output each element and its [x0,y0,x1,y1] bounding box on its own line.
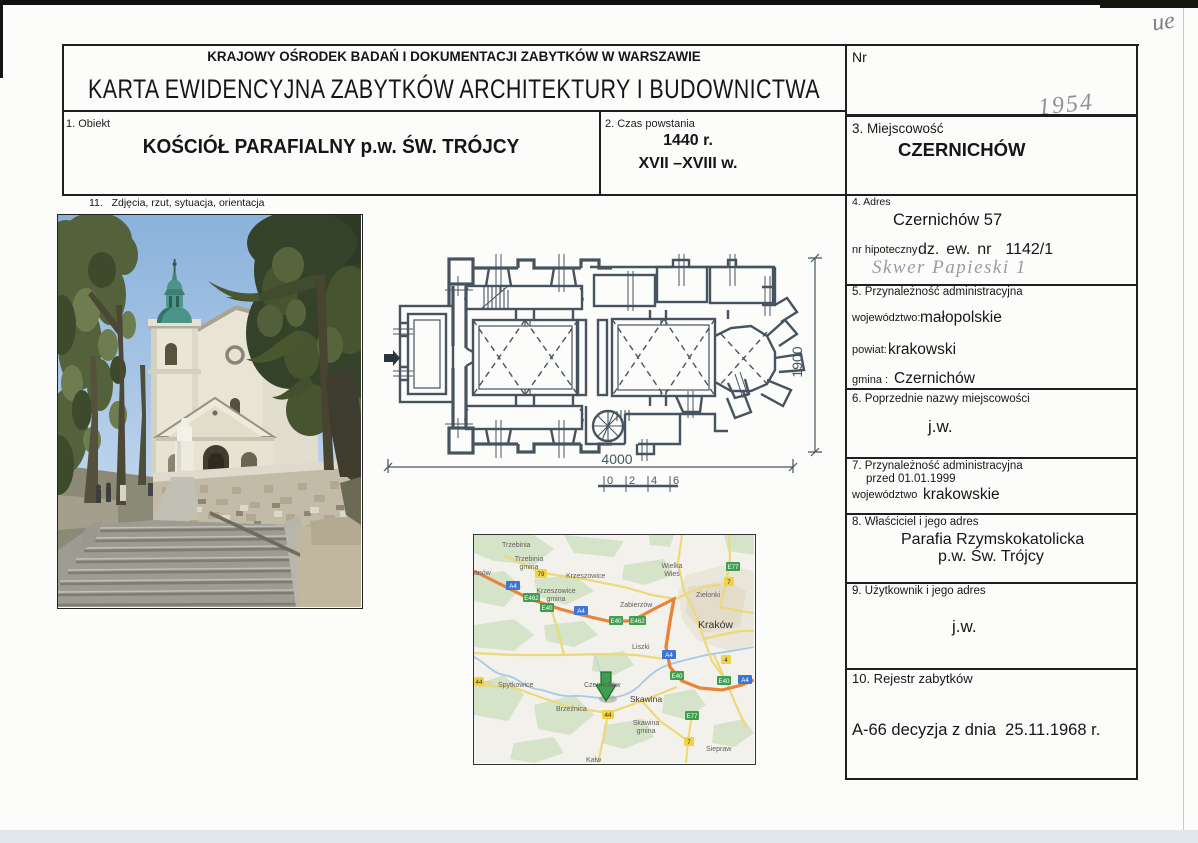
svg-text:7: 7 [727,579,731,586]
svg-text:Krzeszowice: Krzeszowice [536,588,575,595]
svg-text:Zielonki: Zielonki [696,592,721,599]
svg-text:44: 44 [605,712,612,719]
svg-text:A4: A4 [509,583,517,590]
svg-text:E77: E77 [686,713,698,720]
svg-text:Krzeszowice: Krzeszowice [566,573,605,580]
svg-text:Skawina: Skawina [630,694,662,704]
svg-text:E40: E40 [610,618,622,625]
svg-text:anów: anów [474,570,492,577]
svg-text:1900: 1900 [789,346,805,377]
svg-text:Czernichów: Czernichów [584,682,622,689]
svg-text:gmina: gmina [546,596,565,603]
svg-text:Wieś: Wieś [664,571,680,578]
svg-text:2: 2 [629,475,635,487]
svg-text:6: 6 [673,475,679,487]
svg-text:E462: E462 [524,595,539,602]
svg-text:Trzebinia: Trzebinia [502,542,531,549]
svg-text:Wielka: Wielka [661,563,682,570]
svg-text:gmina: gmina [636,728,655,735]
svg-text:E462: E462 [630,618,645,625]
svg-text:A4: A4 [577,608,585,615]
svg-text:Trzebinia: Trzebinia [515,556,544,563]
svg-text:A4: A4 [665,652,673,659]
svg-text:4: 4 [724,657,728,664]
svg-text:79: 79 [538,571,545,578]
svg-text:E40: E40 [541,605,553,612]
svg-text:Kałw: Kałw [586,757,602,763]
svg-text:E40: E40 [671,673,683,680]
svg-text:4000: 4000 [601,451,632,467]
svg-text:E77: E77 [727,564,739,571]
svg-text:Kraków: Kraków [698,619,733,631]
svg-text:A4: A4 [741,677,749,684]
svg-text:44: 44 [476,679,483,686]
svg-text:Liszki: Liszki [632,644,650,651]
svg-text:Brzeźnica: Brzeźnica [556,706,587,713]
svg-text:0: 0 [607,475,613,487]
svg-text:Siepraw: Siepraw [706,746,732,753]
svg-text:gmina: gmina [519,564,538,571]
svg-text:4: 4 [651,475,657,487]
svg-text:7: 7 [687,739,691,746]
svg-text:Zabierzów: Zabierzów [620,602,653,609]
svg-text:Skawina: Skawina [633,720,660,727]
svg-text:Spytkowice: Spytkowice [498,682,534,689]
svg-text:E40: E40 [718,678,730,685]
